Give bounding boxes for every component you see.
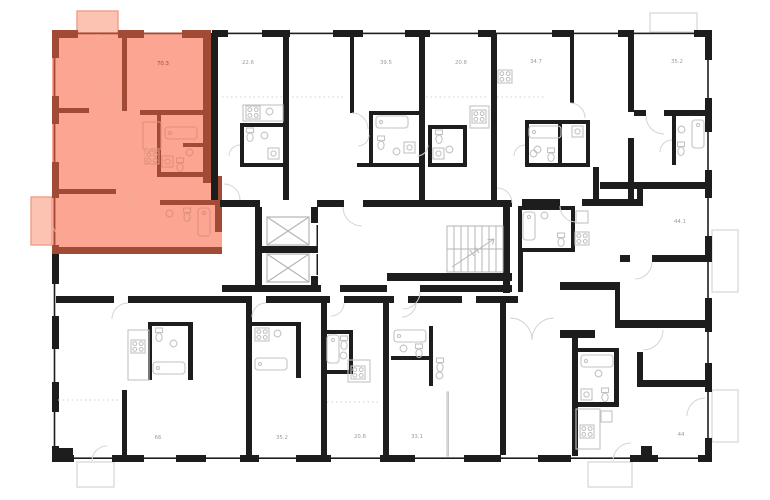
balcony-highlighted-left [31, 197, 52, 245]
floor-plan-canvas: 70.3 22.6 39.5 20.8 34.7 35.2 44.1 66 35… [0, 0, 770, 500]
unit-20.8-top[interactable] [425, 33, 491, 200]
sink-icon [541, 212, 548, 219]
unit-39.5[interactable] [289, 33, 419, 200]
bathtub-icon [523, 212, 535, 240]
balcony-bottom-left [77, 462, 114, 487]
balcony-right-upper [712, 230, 738, 292]
balcony-highlighted-top [77, 11, 118, 33]
door-arc [532, 318, 554, 340]
unit-22.6[interactable] [218, 33, 283, 200]
toilet-icon [558, 233, 565, 247]
unit-35.2-top[interactable] [634, 33, 712, 182]
balcony-right-lower [712, 390, 738, 442]
door-arc [510, 318, 532, 340]
floor-plan: 70.3 22.6 39.5 20.8 34.7 35.2 44.1 66 35… [0, 0, 770, 500]
unit-34.7[interactable] [497, 33, 628, 200]
unit-20.8-bottom[interactable] [327, 303, 383, 455]
balcony-top-right [650, 13, 697, 32]
balcony-bottom-right [588, 462, 632, 487]
unit-44[interactable] [578, 328, 705, 455]
unit-70.3-selected[interactable] [52, 33, 222, 254]
unit-35.2-bottom[interactable] [252, 303, 321, 455]
stairs-direction-arrow [452, 239, 494, 267]
staircase [447, 226, 503, 272]
unit-33.1[interactable] [389, 303, 500, 455]
unit-hotspots [52, 33, 712, 455]
door-arc [343, 207, 362, 226]
unit-66[interactable] [59, 303, 246, 455]
unit-44.1[interactable] [575, 189, 705, 320]
